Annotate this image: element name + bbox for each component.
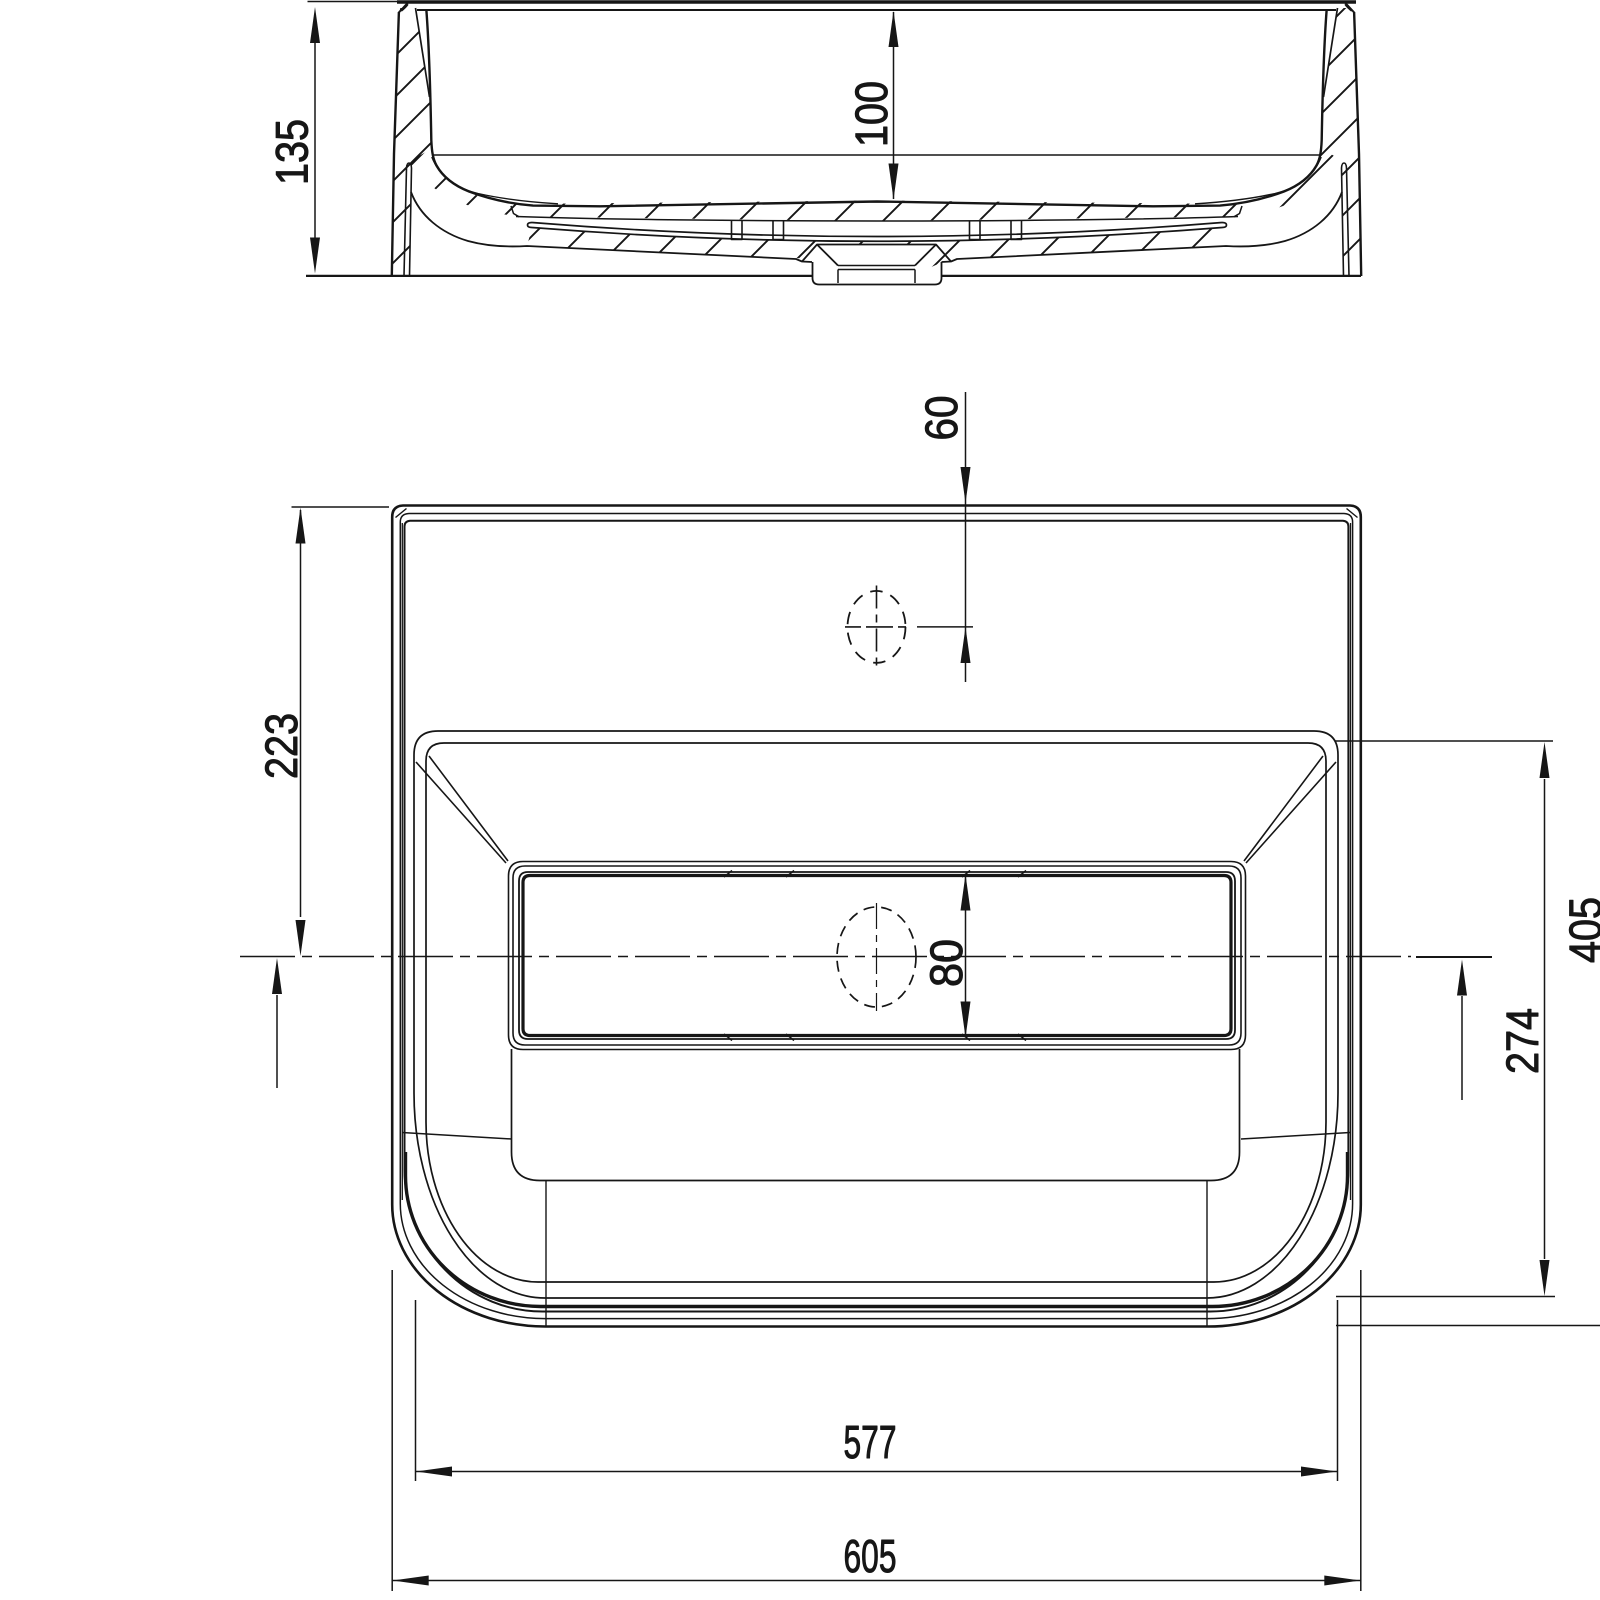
svg-text:135: 135 <box>267 119 318 185</box>
svg-text:80: 80 <box>921 939 972 987</box>
svg-text:223: 223 <box>256 713 307 779</box>
svg-text:60: 60 <box>916 396 967 441</box>
svg-text:274: 274 <box>1497 1008 1548 1074</box>
svg-text:405: 405 <box>1560 897 1600 963</box>
svg-text:605: 605 <box>844 1530 897 1582</box>
svg-text:100: 100 <box>846 81 897 147</box>
svg-text:577: 577 <box>844 1416 897 1468</box>
